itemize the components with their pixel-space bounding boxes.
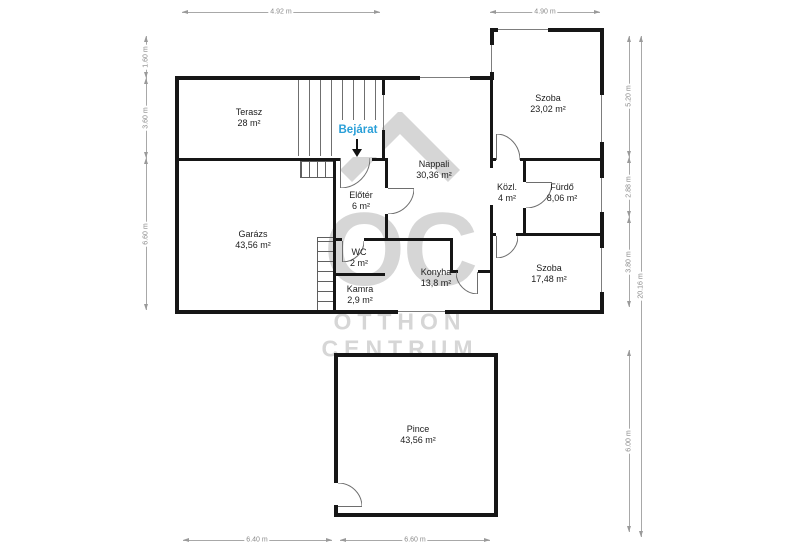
- room-name: Fürdő: [547, 182, 578, 193]
- entry-steps: [300, 161, 335, 178]
- dimension-label: 4.92 m: [268, 9, 293, 16]
- room-area: 4 m²: [497, 193, 517, 204]
- hall-door-arc: [388, 188, 414, 214]
- wall-segment: [523, 208, 526, 235]
- dimension-label: 2.88 m: [626, 174, 633, 199]
- room-area: 28 m²: [236, 118, 263, 129]
- wall-segment: [520, 158, 604, 161]
- wall-segment: [175, 76, 179, 314]
- window: [383, 95, 384, 130]
- room-name: WC: [350, 247, 368, 258]
- wall-segment: [382, 130, 385, 158]
- wall-segment: [383, 238, 453, 241]
- entrance-door-arc: [340, 158, 370, 188]
- room-label-kamra: Kamra 2,9 m²: [347, 284, 374, 306]
- room-name: Kamra: [347, 284, 374, 295]
- cellar-door-arc: [338, 483, 362, 507]
- room-label-terasz: Terasz 28 m²: [236, 107, 263, 129]
- room-label-szoba-2: Szoba 17,48 m²: [531, 263, 567, 285]
- watermark: OC OTTHON CENTRUM: [0, 0, 800, 554]
- room-label-konyha: Konyha 13,8 m²: [421, 267, 452, 289]
- wall-segment: [175, 158, 340, 161]
- dimension-label: 6.40 m: [244, 537, 269, 544]
- dimension-label: 6.60 m: [402, 537, 427, 544]
- room-area: 2 m²: [350, 258, 368, 269]
- kitchen-door-arc: [456, 272, 478, 294]
- entrance-label: Bejárat: [339, 124, 378, 136]
- room-name: Garázs: [235, 229, 271, 240]
- wall-segment: [385, 214, 388, 241]
- room-area: 6 m²: [349, 201, 373, 212]
- room-label-pince: Pince 43,56 m²: [400, 424, 436, 446]
- room-name: Szoba: [531, 263, 567, 274]
- room-area: 8,06 m²: [547, 193, 578, 204]
- wall-segment: [445, 310, 604, 314]
- room-area: 17,48 m²: [531, 274, 567, 285]
- wall-segment: [382, 79, 385, 95]
- dimension-label: 6.60 m: [143, 221, 150, 246]
- dimension-label: 20.16 m: [638, 271, 645, 300]
- room-label-szoba-1: Szoba 23,02 m²: [530, 93, 566, 115]
- room-name: Közl.: [497, 182, 517, 193]
- wall-segment: [600, 28, 604, 95]
- room-name: Szoba: [530, 93, 566, 104]
- wall-segment: [548, 28, 604, 32]
- room-area: 23,02 m²: [530, 104, 566, 115]
- wall-segment: [490, 28, 494, 45]
- wall-segment: [334, 513, 498, 517]
- window: [498, 29, 548, 30]
- wall-segment: [385, 158, 388, 188]
- dimension-label: 5.20 m: [626, 83, 633, 108]
- room-label-nappali: Nappali 30,36 m²: [416, 159, 452, 181]
- wall-segment: [333, 158, 336, 313]
- wall-segment: [334, 353, 498, 357]
- room-area: 13,8 m²: [421, 278, 452, 289]
- room-name: Előtér: [349, 190, 373, 201]
- wall-segment: [333, 273, 385, 276]
- wall-segment: [490, 80, 493, 168]
- wall-segment: [490, 205, 493, 310]
- window: [601, 95, 602, 142]
- window: [601, 178, 602, 212]
- window: [491, 45, 492, 72]
- room-name: Nappali: [416, 159, 452, 170]
- room-label-kozl: Közl. 4 m²: [497, 182, 517, 204]
- wall-segment: [494, 353, 498, 517]
- room-area: 43,56 m²: [400, 435, 436, 446]
- room-label-eloter: Előtér 6 m²: [349, 190, 373, 212]
- wall-segment: [364, 238, 385, 241]
- floor-plan: OC OTTHON CENTRUM: [0, 0, 800, 554]
- room-label-wc: WC 2 m²: [350, 247, 368, 269]
- wall-segment: [175, 310, 398, 314]
- dimension-label: 4.90 m: [532, 9, 557, 16]
- dimension-label: 1.60 m: [143, 44, 150, 69]
- dimension-label: 6.00 m: [626, 428, 633, 453]
- wall-segment: [523, 161, 526, 182]
- window: [420, 77, 470, 78]
- room-label-garazs: Garázs 43,56 m²: [235, 229, 271, 251]
- wall-segment: [334, 353, 338, 483]
- room-name: Konyha: [421, 267, 452, 278]
- watermark-line2: CENTRUM: [322, 336, 479, 363]
- wall-segment: [490, 72, 494, 80]
- wall-segment: [516, 233, 604, 236]
- wall-segment: [600, 212, 604, 248]
- entrance-arrowhead-icon: [352, 149, 362, 157]
- window: [398, 311, 445, 312]
- dimension-label: 3.80 m: [626, 249, 633, 274]
- dimension-label: 3.60 m: [143, 105, 150, 130]
- bedroom-door-arc: [496, 134, 520, 160]
- room-name: Terasz: [236, 107, 263, 118]
- room-label-furdo: Fürdő 8,06 m²: [547, 182, 578, 204]
- room-area: 30,36 m²: [416, 170, 452, 181]
- room-area: 43,56 m²: [235, 240, 271, 251]
- window: [601, 248, 602, 292]
- room-name: Pince: [400, 424, 436, 435]
- bedroom2-door-arc: [496, 236, 518, 258]
- room-area: 2,9 m²: [347, 295, 374, 306]
